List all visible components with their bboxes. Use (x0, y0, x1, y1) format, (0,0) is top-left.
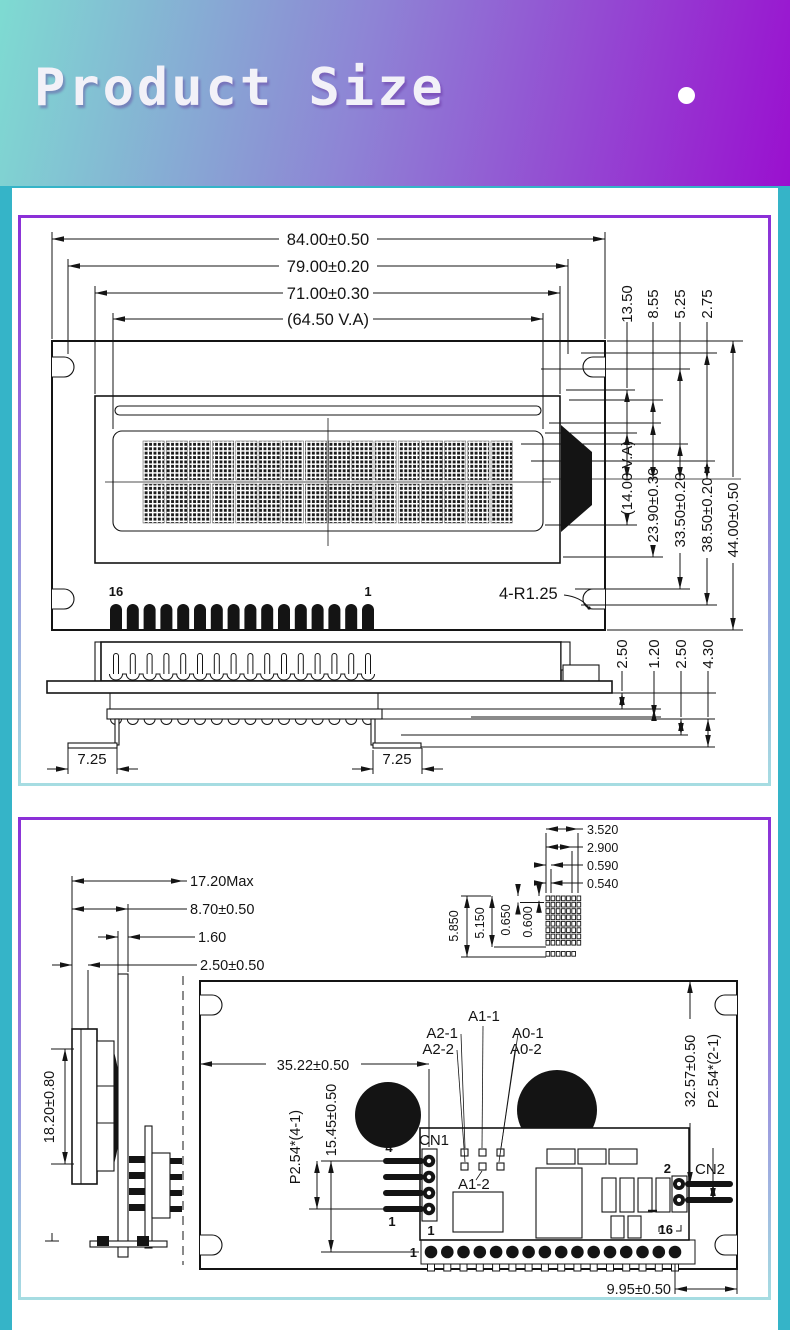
pixel-dot (551, 934, 555, 939)
pixel-dot (562, 940, 566, 945)
decorative-dot-icon (678, 87, 695, 104)
dim-8-55: 8.55 (645, 289, 662, 318)
dim-p254-4: P2.54*(4-1) (288, 1110, 304, 1184)
lcd-char-cell (468, 441, 489, 480)
pin-stub (444, 1264, 451, 1271)
side-pin (164, 654, 169, 675)
chip-a1-2 (453, 1192, 503, 1232)
pixel-dot (577, 940, 581, 945)
pin-pad (506, 1246, 519, 1259)
cn1-pin4-label: 4 (385, 1140, 393, 1155)
pixel-dot (551, 902, 555, 907)
bezel-section (72, 1029, 97, 1184)
cursor-dot (562, 952, 566, 957)
pixel-dot (546, 928, 550, 933)
pin-pad (522, 1246, 535, 1259)
pixel-dot (546, 921, 550, 926)
pin-1-label: 1 (427, 1223, 434, 1238)
dim-5-150: 5.150 (473, 907, 487, 938)
clip (45, 1233, 59, 1241)
pin-pad (669, 1246, 682, 1259)
lcd-char-cell (259, 441, 280, 480)
dim-2-75: 2.75 (699, 289, 716, 318)
connector-pins (111, 719, 374, 725)
pixel-dot (577, 902, 581, 907)
bent-foot-right (373, 743, 421, 748)
dim-23-90: 23.90±0.30 (645, 468, 662, 543)
cursor-dot (572, 952, 576, 957)
pixel-dot (551, 915, 555, 920)
side-pin (315, 654, 320, 675)
front-pin (345, 604, 357, 630)
pin-stub (525, 1264, 532, 1271)
pin-pad (604, 1246, 617, 1259)
dim-2-50a: 2.50 (614, 639, 631, 668)
connector-scallops (111, 719, 374, 725)
pixel-dot (567, 902, 571, 907)
lcd-char-cell (375, 441, 396, 480)
pin-stub (558, 1264, 565, 1271)
lcd-char-cell (189, 484, 210, 523)
dim-2-50: 2.50±0.50 (200, 958, 264, 974)
lcd-char-cell (445, 484, 466, 523)
corner-radius-note: 4-R1.25 (499, 585, 558, 603)
top-slot (115, 406, 541, 415)
lcd-char-cell (236, 441, 257, 480)
pixel-dot (577, 896, 581, 901)
front-pin (244, 604, 256, 630)
front-pin (328, 604, 340, 630)
dim-2-900: 2.900 (587, 841, 618, 855)
side-pin (282, 654, 287, 675)
pixel-dot (572, 928, 576, 933)
pcb-section (118, 974, 128, 1257)
pixel-dot (567, 940, 571, 945)
pixel-dot (562, 934, 566, 939)
lcd-char-cell (259, 484, 280, 523)
pixel-dot (556, 915, 560, 920)
pixel-dot (546, 934, 550, 939)
mounting-notch (583, 357, 605, 377)
pixel-dot (572, 896, 576, 901)
front-pin (295, 604, 307, 630)
cn1-label: CN1 (419, 1132, 449, 1149)
pixel-dot (556, 902, 560, 907)
front-pin (261, 604, 273, 630)
side-pin (147, 654, 152, 675)
lcd-char-cell (143, 441, 164, 480)
pin-pad (490, 1246, 503, 1259)
dim-7-25-right: 7.25 (382, 751, 411, 768)
pixel-dot (556, 921, 560, 926)
pin-number-1: 1 (364, 584, 371, 599)
front-view: 16 1 4-R1.25 (52, 341, 605, 630)
lcd-char-cell (282, 484, 303, 523)
dim-14-va: (14.00 V.A) (619, 441, 636, 516)
pin-pad (620, 1246, 633, 1259)
page: { "colors": { "page_bg": "#35b4c8", "hea… (0, 0, 790, 1330)
cn2-label: CN2 (695, 1161, 725, 1178)
bent-foot-left (68, 743, 117, 748)
jumper-a2-1: A2-1 (426, 1025, 458, 1042)
pixel-dot (556, 909, 560, 914)
pixel-dot (572, 915, 576, 920)
front-pin (194, 604, 206, 630)
pin-stub (460, 1264, 467, 1271)
cn2-pin2-label: 2 (664, 1161, 671, 1176)
lcd-char-cell (236, 484, 257, 523)
front-pin (160, 604, 172, 630)
front-pin (312, 604, 324, 630)
back-view: A2-1 A2-2 A1-1 A0-1 A0-2 A1-2 CN1 4 1 2 … (200, 981, 737, 1271)
lcd-char-cell (421, 441, 442, 480)
lcd-char-cell (213, 441, 234, 480)
cn1-lead (383, 1206, 424, 1212)
side-pin (130, 654, 135, 675)
dim-9-95: 9.95±0.50 (607, 1282, 671, 1297)
cn2-hole (677, 1182, 681, 1186)
module-body (101, 642, 561, 681)
dim-35-22: 35.22±0.50 (277, 1058, 349, 1074)
backlight-section (145, 1126, 152, 1248)
pin-stub (509, 1264, 516, 1271)
dim-84: 84.00±0.50 (287, 231, 369, 249)
pixel-dot (567, 928, 571, 933)
mounting-notch (583, 589, 605, 609)
dim-17-20: 17.20Max (190, 874, 254, 890)
side-section: 18.20±0.80 (42, 974, 183, 1265)
pixel-dot (577, 909, 581, 914)
side-pin (231, 654, 236, 675)
pixel-dot (567, 934, 571, 939)
pixel-dot (572, 921, 576, 926)
pin-stub (574, 1264, 581, 1271)
cn1-pin1-label: 1 (388, 1214, 395, 1229)
pin-stub (590, 1264, 597, 1271)
cn1-lead (383, 1190, 424, 1196)
pixel-dot (562, 921, 566, 926)
dim-79: 79.00±0.20 (287, 258, 369, 276)
front-pin (228, 604, 240, 630)
pixel-dot (551, 940, 555, 945)
pixel-dot (577, 921, 581, 926)
lcd-char-cell (352, 441, 373, 480)
drawing-front-and-side: 16 1 4-R1.25 84.00±0.50 79.00±0.20 71.00… (21, 218, 768, 783)
dim-33-50: 33.50±0.20 (672, 473, 689, 548)
pixel-dot (551, 896, 555, 901)
page-header: Product Size (0, 0, 790, 186)
dim-0-650: 0.650 (499, 904, 513, 935)
dim-4-30: 4.30 (700, 639, 717, 668)
pin-pad (636, 1246, 649, 1259)
panel-front-view-inner: 16 1 4-R1.25 84.00±0.50 79.00±0.20 71.00… (21, 218, 768, 783)
lcd-char-cell (375, 484, 396, 523)
drawing-back-and-section: 17.20Max 8.70±0.50 1.60 2.50±0.50 18.20±… (21, 820, 768, 1297)
side-pin (298, 654, 303, 675)
side-pin (349, 654, 354, 675)
side-pin (114, 654, 119, 675)
jumper-a0-2: A0-2 (510, 1041, 542, 1058)
lcd-char-cell (166, 484, 187, 523)
pixel-dot (556, 940, 560, 945)
glass-stack (97, 1041, 114, 1171)
pixel-dot (551, 928, 555, 933)
cursor-dot (556, 952, 560, 957)
pixel-dot (577, 915, 581, 920)
dim-8-70: 8.70±0.50 (190, 902, 254, 918)
dim-7-25-left: 7.25 (77, 751, 106, 768)
mounting-notch (52, 357, 74, 377)
pixel-dot (572, 902, 576, 907)
dim-32-57: 32.57±0.50 (683, 1035, 699, 1107)
dim-71: 71.00±0.30 (287, 285, 369, 303)
mounting-notch (200, 995, 222, 1015)
backlight-connector (107, 709, 382, 719)
cn1-hole (427, 1159, 431, 1163)
pin-16-label: 16 (659, 1222, 673, 1237)
pin-pad (457, 1246, 470, 1259)
pixel-dot (562, 902, 566, 907)
pin-stub (639, 1264, 646, 1271)
cn1-hole (427, 1175, 431, 1179)
lcd-char-cell (282, 441, 303, 480)
mounting-notch (200, 1235, 222, 1255)
pixel-dot (556, 928, 560, 933)
pin-stub (428, 1264, 435, 1271)
backlight-hole-left (355, 1082, 421, 1148)
page-title: Product Size (34, 58, 446, 118)
pin-stub (623, 1264, 630, 1271)
jumper-a0-1: A0-1 (512, 1025, 544, 1042)
dim-0-540: 0.540 (587, 877, 618, 891)
dim-5-850: 5.850 (447, 910, 461, 941)
pin-pad (539, 1246, 552, 1259)
pixel-dot (567, 915, 571, 920)
pixel-dot (546, 896, 550, 901)
cn2-lead (685, 1181, 733, 1187)
lcd-char-cell (445, 441, 466, 480)
pin-pad (441, 1246, 454, 1259)
dim-15-45: 15.45±0.50 (324, 1084, 340, 1156)
pixel-dot (572, 934, 576, 939)
mounting-notch (715, 995, 737, 1015)
cn2-lead (685, 1197, 733, 1203)
mounting-notch (52, 589, 74, 609)
pin-stub (541, 1264, 548, 1271)
lcd-char-cell (421, 484, 442, 523)
dim-2-50b: 2.50 (673, 639, 690, 668)
pin-pad (571, 1246, 584, 1259)
cn2-hole (677, 1198, 681, 1202)
side-pin (248, 654, 253, 675)
pixel-dot (572, 909, 576, 914)
lcd-char-cell (189, 441, 210, 480)
pixel-dot (556, 896, 560, 901)
dim-13-50: 13.50 (619, 285, 636, 323)
pin-pad (653, 1246, 666, 1259)
pin-stub (476, 1264, 483, 1271)
pixel-dot (546, 902, 550, 907)
lcd-char-cell (213, 484, 234, 523)
pin-pad (474, 1246, 487, 1259)
lcd-char-cell (143, 484, 164, 523)
lcd-char-cell (491, 484, 512, 523)
mounting-notch (715, 1235, 737, 1255)
pin-pad (587, 1246, 600, 1259)
dim-44-00: 44.00±0.50 (725, 483, 742, 558)
pin-stub (607, 1264, 614, 1271)
lcd-char-cell (468, 484, 489, 523)
panel-front-view: 16 1 4-R1.25 84.00±0.50 79.00±0.20 71.00… (18, 215, 771, 786)
side-pin (181, 654, 186, 674)
lcd-char-cell (329, 484, 350, 523)
front-pin (362, 604, 374, 630)
cn1-lead (383, 1158, 424, 1164)
side-pin (366, 654, 371, 675)
pin-pad (425, 1246, 438, 1259)
pixel-dot (546, 909, 550, 914)
pixel-dot (556, 934, 560, 939)
lcd-char-cell (305, 441, 326, 480)
pin-stub (493, 1264, 500, 1271)
dim-p254-2: P2.54*(2-1) (706, 1034, 722, 1108)
pixel-dot (572, 940, 576, 945)
connector-section (152, 1153, 170, 1218)
lcd-char-cell (352, 484, 373, 523)
dim-5-25: 5.25 (672, 289, 689, 318)
dim-38-50: 38.50±0.20 (699, 478, 716, 553)
cursor-dot (551, 952, 555, 957)
pixel-grid (546, 896, 581, 956)
chip-large (536, 1168, 582, 1238)
side-pin (332, 654, 337, 675)
dim-0-600: 0.600 (521, 906, 535, 937)
front-pin (110, 604, 122, 630)
pixel-dot (577, 934, 581, 939)
pixel-dot (567, 909, 571, 914)
jumper-a2-2: A2-2 (422, 1041, 454, 1058)
lcd-char-cell (329, 441, 350, 480)
front-pin (278, 604, 290, 630)
pixel-dot (567, 921, 571, 926)
pixel-dot (551, 921, 555, 926)
side-pin (214, 654, 219, 675)
lcd-char-cell (491, 441, 512, 480)
pixel-dot (551, 909, 555, 914)
lcd-char-cell (166, 441, 187, 480)
pin-stub (655, 1264, 662, 1271)
pixel-dot (546, 940, 550, 945)
dim-1-20: 1.20 (646, 639, 663, 668)
panel-back-view: 17.20Max 8.70±0.50 1.60 2.50±0.50 18.20±… (18, 817, 771, 1300)
side-pin (265, 654, 270, 675)
pcb-side (47, 681, 612, 693)
cn1-lead (383, 1174, 424, 1180)
dim-18-20: 18.20±0.80 (42, 1071, 58, 1143)
panel-back-view-inner: 17.20Max 8.70±0.50 1.60 2.50±0.50 18.20±… (21, 820, 768, 1297)
pixel-dot (562, 909, 566, 914)
front-pin (127, 604, 139, 630)
lcd-char-cell (398, 441, 419, 480)
cursor-dot (546, 952, 550, 957)
front-pin (177, 604, 189, 630)
cursor-dot (567, 952, 571, 957)
side-pin (198, 654, 203, 675)
pixel-dot (546, 915, 550, 920)
pixel-dot (567, 896, 571, 901)
front-pin (211, 604, 223, 630)
lcd-char-cell (305, 484, 326, 523)
front-pin (144, 604, 156, 630)
dim-1-60: 1.60 (198, 930, 226, 946)
dim-0-590: 0.590 (587, 859, 618, 873)
jumper-a1-2: A1-2 (458, 1176, 490, 1193)
jumper-a1-1: A1-1 (468, 1008, 500, 1025)
pixel-dot (577, 928, 581, 933)
cell-detail: 3.520 2.900 0.590 0.540 5.850 5.150 0.65… (447, 823, 618, 957)
pixel-dot (562, 896, 566, 901)
cn1-hole (427, 1207, 431, 1211)
pin-pad (555, 1246, 568, 1259)
dim-64: (64.50 V.A) (287, 311, 369, 329)
cn1-hole (427, 1191, 431, 1195)
dim-3-520: 3.520 (587, 823, 618, 837)
pin-number-16: 16 (109, 584, 123, 599)
pixel-dot (562, 928, 566, 933)
pixel-dot (562, 915, 566, 920)
lcd-char-cell (398, 484, 419, 523)
